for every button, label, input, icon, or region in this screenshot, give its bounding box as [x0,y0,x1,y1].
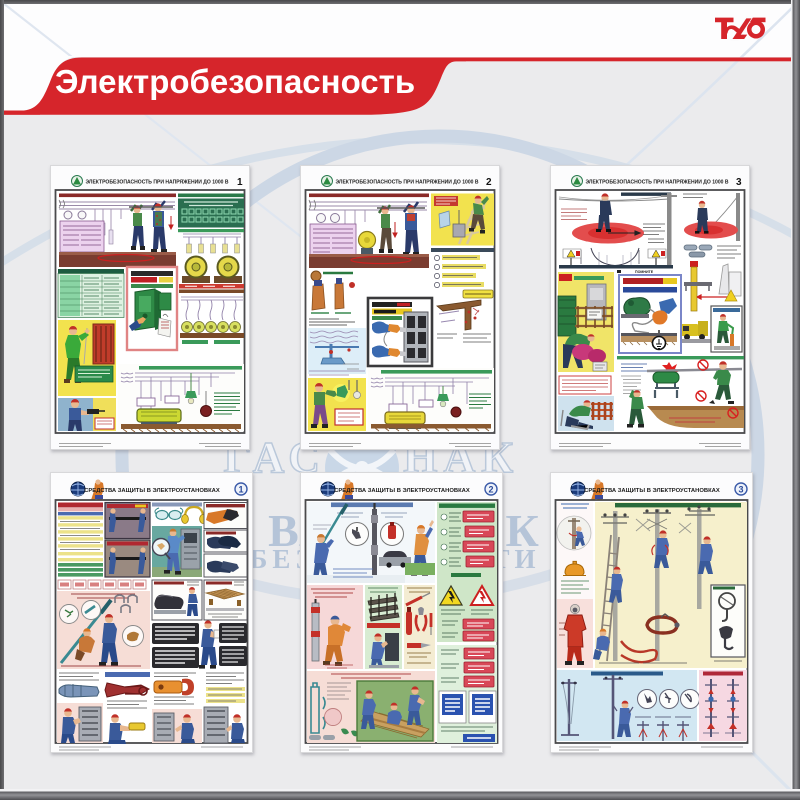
svg-text:ЭЛЕКТРОБЕЗОПАСНОСТЬ ПРИ НАПРЯЖ: ЭЛЕКТРОБЕЗОПАСНОСТЬ ПРИ НАПРЯЖЕНИИ ДО 10… [336,180,479,186]
svg-text:СРЕДСТВА ЗАЩИТЫ В ЭЛЕКТРОУСТАН: СРЕДСТВА ЗАЩИТЫ В ЭЛЕКТРОУСТАНОВКАХ [584,488,720,494]
svg-text:СРЕДСТВА ЗАЩИТЫ В ЭЛЕКТРОУСТАН: СРЕДСТВА ЗАЩИТЫ В ЭЛЕКТРОУСТАНОВКАХ [84,488,220,494]
svg-text:2: 2 [488,485,493,495]
svg-text:3: 3 [738,485,743,495]
svg-text:2: 2 [486,177,492,188]
svg-text:ПОМНИТЕ: ПОМНИТЕ [635,270,654,274]
svg-text:ЭЛЕКТРОБЕЗОПАСНОСТЬ ПРИ НАПРЯЖ: ЭЛЕКТРОБЕЗОПАСНОСТЬ ПРИ НАПРЯЖЕНИИ ДО 10… [86,180,229,186]
svg-text:1: 1 [238,485,243,495]
svg-text:3: 3 [736,177,742,188]
svg-text:1: 1 [237,177,243,188]
svg-text:СРЕДСТВА ЗАЩИТЫ В ЭЛЕКТРОУСТАН: СРЕДСТВА ЗАЩИТЫ В ЭЛЕКТРОУСТАНОВКАХ [334,488,470,494]
svg-text:ЭЛЕКТРОБЕЗОПАСНОСТЬ ПРИ НАПРЯЖ: ЭЛЕКТРОБЕЗОПАСНОСТЬ ПРИ НАПРЯЖЕНИИ ДО 10… [586,180,729,186]
